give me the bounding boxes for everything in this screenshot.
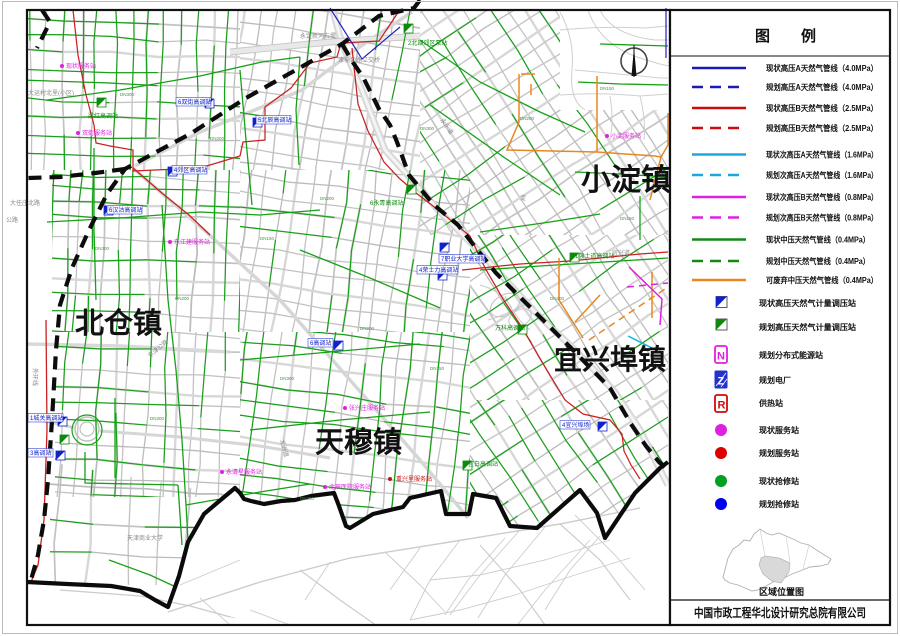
svg-text:张兴庄服务站: 张兴庄服务站 bbox=[349, 404, 385, 412]
svg-text:天穆镇: 天穆镇 bbox=[315, 426, 402, 459]
svg-text:图: 图 bbox=[755, 28, 770, 45]
svg-text:DN200: DN200 bbox=[300, 496, 315, 501]
svg-text:北辰医院服务站: 北辰医院服务站 bbox=[329, 483, 371, 491]
svg-text:7职业大学高调站: 7职业大学高调站 bbox=[441, 255, 486, 263]
svg-text:双街服务站: 双街服务站 bbox=[82, 129, 112, 137]
svg-text:现状服务站: 现状服务站 bbox=[66, 62, 96, 70]
svg-text:宜兴道: 宜兴道 bbox=[612, 249, 630, 257]
svg-text:4宜兴埠场: 4宜兴埠场 bbox=[562, 421, 589, 429]
svg-text:1强士道高调站: 1强士道高调站 bbox=[575, 252, 614, 260]
svg-text:例: 例 bbox=[801, 27, 816, 45]
svg-text:DN200: DN200 bbox=[520, 116, 535, 121]
svg-text:N: N bbox=[717, 351, 725, 363]
svg-text:DN300: DN300 bbox=[150, 416, 165, 421]
svg-text:DN300: DN300 bbox=[280, 376, 295, 381]
svg-text:规划抢修站: 规划抢修站 bbox=[759, 499, 799, 509]
svg-text:6双街高调站: 6双街高调站 bbox=[178, 98, 211, 106]
svg-text:大任庄北路: 大任庄北路 bbox=[10, 199, 40, 207]
svg-text:4郊区高调站: 4郊区高调站 bbox=[174, 166, 207, 174]
svg-text:现状高压A天然气管线（4.0MPa）: 现状高压A天然气管线（4.0MPa） bbox=[766, 63, 878, 73]
svg-text:规划服务站: 规划服务站 bbox=[759, 448, 799, 458]
svg-text:大运村北里(小区): 大运村北里(小区) bbox=[28, 89, 74, 97]
svg-text:规划电厂: 规划电厂 bbox=[759, 375, 791, 385]
svg-text:现状次高压B天然气管线（0.8MPa）: 现状次高压B天然气管线（0.8MPa） bbox=[766, 192, 878, 202]
svg-text:现状高压天然气计量调压站: 现状高压天然气计量调压站 bbox=[759, 298, 856, 308]
svg-text:公路: 公路 bbox=[6, 216, 18, 224]
svg-text:中国市政工程华北设计研究总院有限公司: 中国市政工程华北设计研究总院有限公司 bbox=[694, 605, 866, 620]
svg-text:规划高压天然气计量调压站: 规划高压天然气计量调压站 bbox=[759, 322, 856, 332]
svg-text:规划分布式能源站: 规划分布式能源站 bbox=[759, 350, 823, 360]
svg-text:区域位置图: 区域位置图 bbox=[759, 586, 804, 597]
svg-text:3高调站: 3高调站 bbox=[30, 449, 51, 457]
svg-text:6高调站: 6高调站 bbox=[310, 339, 331, 347]
svg-text:DN300: DN300 bbox=[420, 126, 435, 131]
svg-text:宜兴埠镇: 宜兴埠镇 bbox=[554, 343, 666, 375]
svg-text:规划高压B天然气管线（2.5MPa）: 规划高压B天然气管线（2.5MPa） bbox=[766, 123, 878, 133]
svg-text:DN200: DN200 bbox=[320, 196, 335, 201]
svg-text:R: R bbox=[718, 400, 726, 412]
svg-text:天津商业大学: 天津商业大学 bbox=[127, 534, 163, 542]
svg-text:永定新河右堤: 永定新河右堤 bbox=[300, 32, 336, 40]
svg-text:重兴里服务站: 重兴里服务站 bbox=[396, 475, 432, 483]
svg-text:DN150: DN150 bbox=[620, 216, 635, 221]
svg-text:1城关高调站: 1城关高调站 bbox=[30, 414, 63, 422]
svg-text:小淀镇: 小淀镇 bbox=[581, 164, 671, 197]
svg-text:现状服务站: 现状服务站 bbox=[759, 425, 799, 435]
svg-text:DN200: DN200 bbox=[175, 296, 190, 301]
svg-text:规划高压A天然气管线（4.0MPa）: 规划高压A天然气管线（4.0MPa） bbox=[766, 82, 878, 92]
svg-text:Z: Z bbox=[718, 376, 725, 388]
svg-text:6汉沽高调站: 6汉沽高调站 bbox=[109, 206, 142, 214]
svg-text:6永青高调站: 6永青高调站 bbox=[370, 199, 403, 207]
svg-text:梁红高调站: 梁红高调站 bbox=[88, 112, 118, 120]
svg-text:现状高压B天然气管线（2.5MPa）: 现状高压B天然气管线（2.5MPa） bbox=[766, 103, 878, 113]
svg-text:规划次高压A天然气管线（1.6MPa）: 规划次高压A天然气管线（1.6MPa） bbox=[766, 170, 878, 180]
svg-text:DN300: DN300 bbox=[120, 92, 135, 97]
svg-text:4荣士力高调站: 4荣士力高调站 bbox=[419, 266, 458, 274]
svg-text:DN150: DN150 bbox=[430, 366, 445, 371]
svg-text:津榆公路立交桥: 津榆公路立交桥 bbox=[338, 56, 380, 64]
svg-text:淀: 淀 bbox=[520, 194, 526, 202]
svg-text:DN150: DN150 bbox=[600, 86, 615, 91]
svg-text:规划中压天然气管线（0.4MPa）: 规划中压天然气管线（0.4MPa） bbox=[766, 256, 870, 266]
svg-text:宜白高调站: 宜白高调站 bbox=[468, 460, 498, 468]
svg-text:DN200: DN200 bbox=[360, 326, 375, 331]
svg-text:东江建服务站: 东江建服务站 bbox=[174, 238, 210, 246]
svg-text:2北部郊区泵站: 2北部郊区泵站 bbox=[408, 39, 447, 47]
svg-text:DN200: DN200 bbox=[210, 136, 225, 141]
svg-text:DN200: DN200 bbox=[550, 296, 565, 301]
svg-text:永清星服务站: 永清星服务站 bbox=[226, 468, 262, 476]
svg-text:外环线: 外环线 bbox=[31, 368, 39, 386]
svg-text:DN150: DN150 bbox=[260, 236, 275, 241]
svg-text:DN300: DN300 bbox=[95, 246, 110, 251]
svg-text:可废弃中压天然气管线（0.4MPa）: 可废弃中压天然气管线（0.4MPa） bbox=[766, 275, 878, 285]
svg-text:供热站: 供热站 bbox=[758, 398, 783, 408]
svg-text:规划次高压B天然气管线（0.8MPa）: 规划次高压B天然气管线（0.8MPa） bbox=[766, 213, 878, 223]
svg-text:永乐道: 永乐道 bbox=[438, 117, 455, 136]
svg-text:现状抢修站: 现状抢修站 bbox=[759, 476, 799, 486]
svg-text:小淀服务站: 小淀服务站 bbox=[611, 132, 641, 140]
svg-text:5北辰高调站: 5北辰高调站 bbox=[258, 116, 291, 124]
svg-text:现状中压天然气管线（0.4MPa）: 现状中压天然气管线（0.4MPa） bbox=[766, 235, 870, 245]
svg-text:万科高调站: 万科高调站 bbox=[495, 324, 525, 332]
svg-text:北仓镇: 北仓镇 bbox=[75, 307, 162, 340]
svg-text:现状次高压A天然气管线（1.6MPa）: 现状次高压A天然气管线（1.6MPa） bbox=[766, 150, 878, 160]
